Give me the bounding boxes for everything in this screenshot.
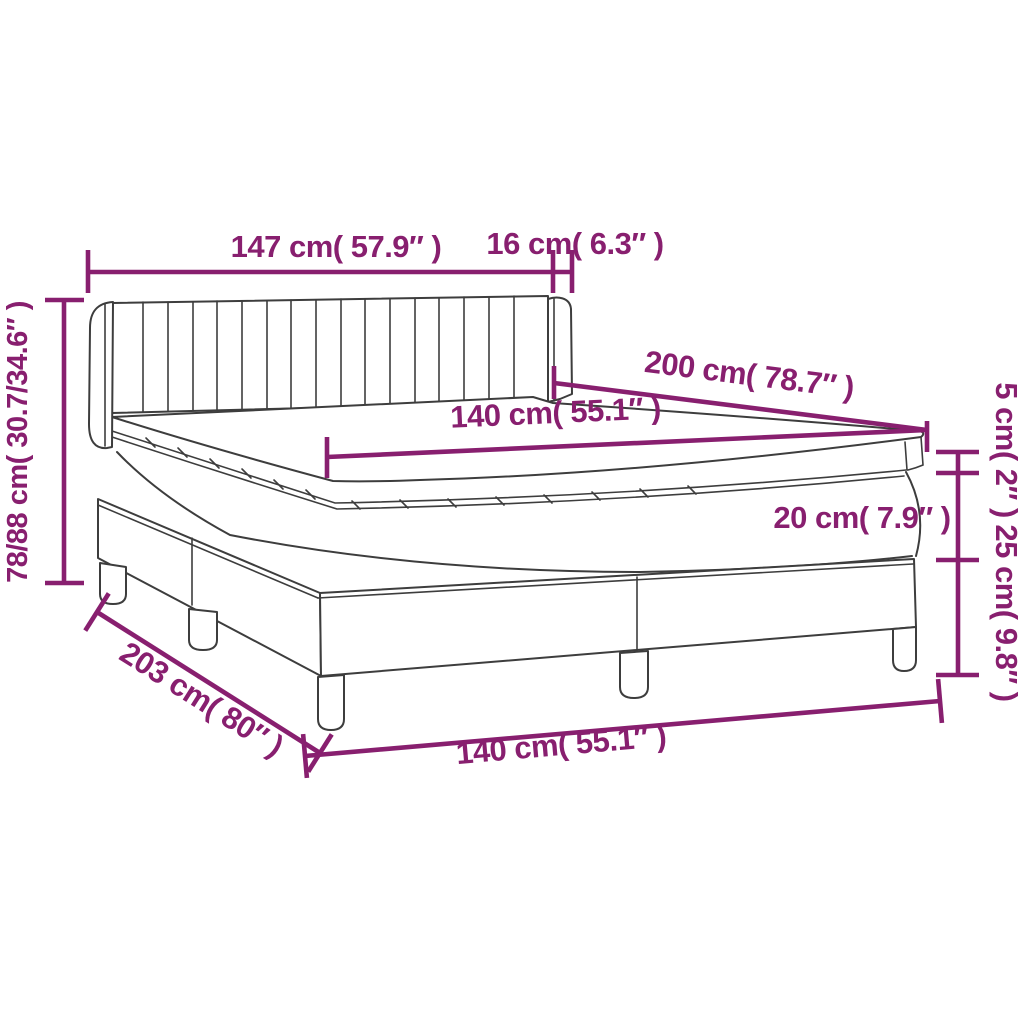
dimension-diagram: 147 cm( 57.9″ ) 16 cm( 6.3″ ) 78/88 cm( …	[0, 0, 1024, 1024]
dimension-height-range: 78/88 cm( 30.7/34.6″ )	[2, 300, 84, 583]
headboard-left-wing	[89, 302, 113, 448]
base-width-label: 140 cm( 55.1″ )	[455, 718, 668, 771]
topper-thickness-label: 5 cm( 2″ )	[989, 382, 1024, 518]
headboard	[112, 296, 572, 413]
frame-length-label: 203 cm( 80″ )	[114, 635, 290, 764]
height-range-label: 78/88 cm( 30.7/34.6″ )	[2, 301, 34, 583]
diagram-canvas: 147 cm( 57.9″ ) 16 cm( 6.3″ ) 78/88 cm( …	[0, 0, 1024, 1024]
mattress-thickness-label: 20 cm( 7.9″ )	[773, 500, 950, 535]
base-height-label: 25 cm( 9.8″ )	[989, 524, 1024, 701]
wing-depth-label: 16 cm( 6.3″ )	[486, 226, 663, 261]
dimension-headboard-width: 147 cm( 57.9″ ) 16 cm( 6.3″ )	[88, 226, 664, 293]
headboard-width-label: 147 cm( 57.9″ )	[231, 229, 442, 264]
